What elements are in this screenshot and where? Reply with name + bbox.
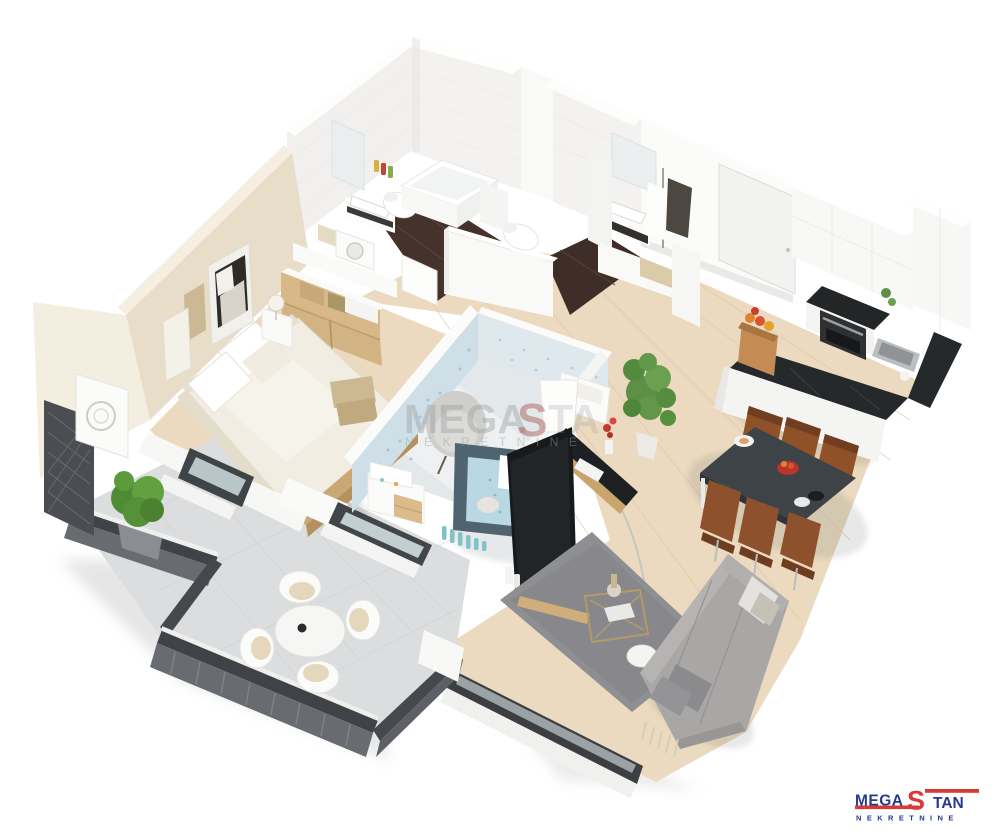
svg-text:TAN: TAN — [933, 795, 964, 812]
svg-text:NEKRETNINE: NEKRETNINE — [856, 814, 959, 823]
svg-text:S: S — [907, 786, 925, 816]
svg-text:NEKRETNINE: NEKRETNINE — [405, 435, 587, 449]
